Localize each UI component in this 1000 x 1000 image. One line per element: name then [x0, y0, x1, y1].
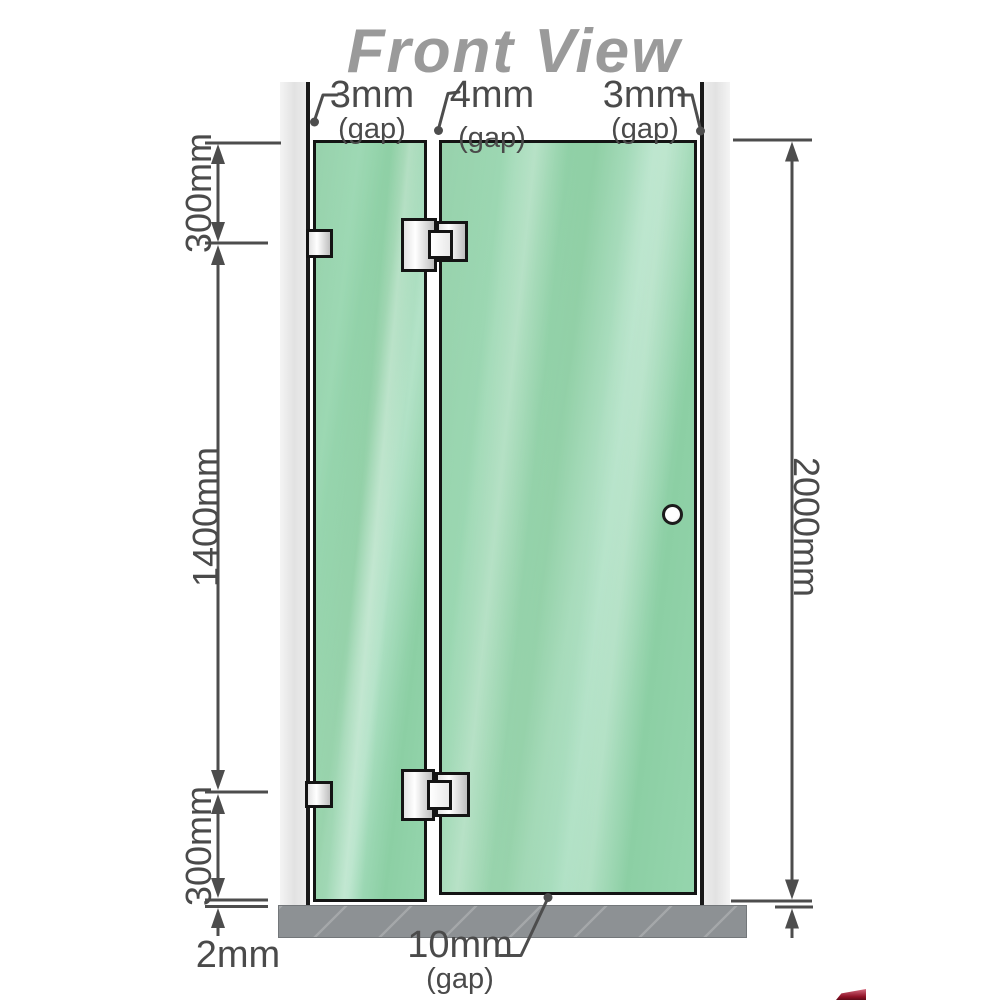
gap-note: (gap) [447, 123, 537, 153]
gap-note: (gap) [600, 114, 690, 144]
top-gap-middle-label: 4mm (gap) [447, 76, 537, 153]
top-gap-left-label: 3mm (gap) [327, 76, 417, 144]
leader-lines [315, 92, 701, 956]
right-height-dimension-label: 2000mm [788, 442, 824, 612]
floor-gap-dimension-label: 2mm [178, 936, 298, 974]
front-view-diagram: Front View [0, 0, 1000, 1000]
left-middle-dimension-label: 1400mm [188, 437, 224, 597]
leader-dots [310, 118, 705, 903]
left-bottom-dimension-label: 300mm [181, 776, 217, 916]
bottom-gap-label: 10mm (gap) [405, 926, 515, 994]
gap-note: (gap) [405, 964, 515, 994]
top-gap-right-label: 3mm (gap) [600, 76, 690, 144]
gap-note: (gap) [327, 114, 417, 144]
gap-value: 3mm [327, 76, 417, 114]
gap-value: 3mm [600, 76, 690, 114]
gap-value: 10mm [405, 926, 515, 964]
left-top-dimension-label: 300mm [181, 123, 217, 263]
gap-value: 4mm [447, 76, 537, 114]
